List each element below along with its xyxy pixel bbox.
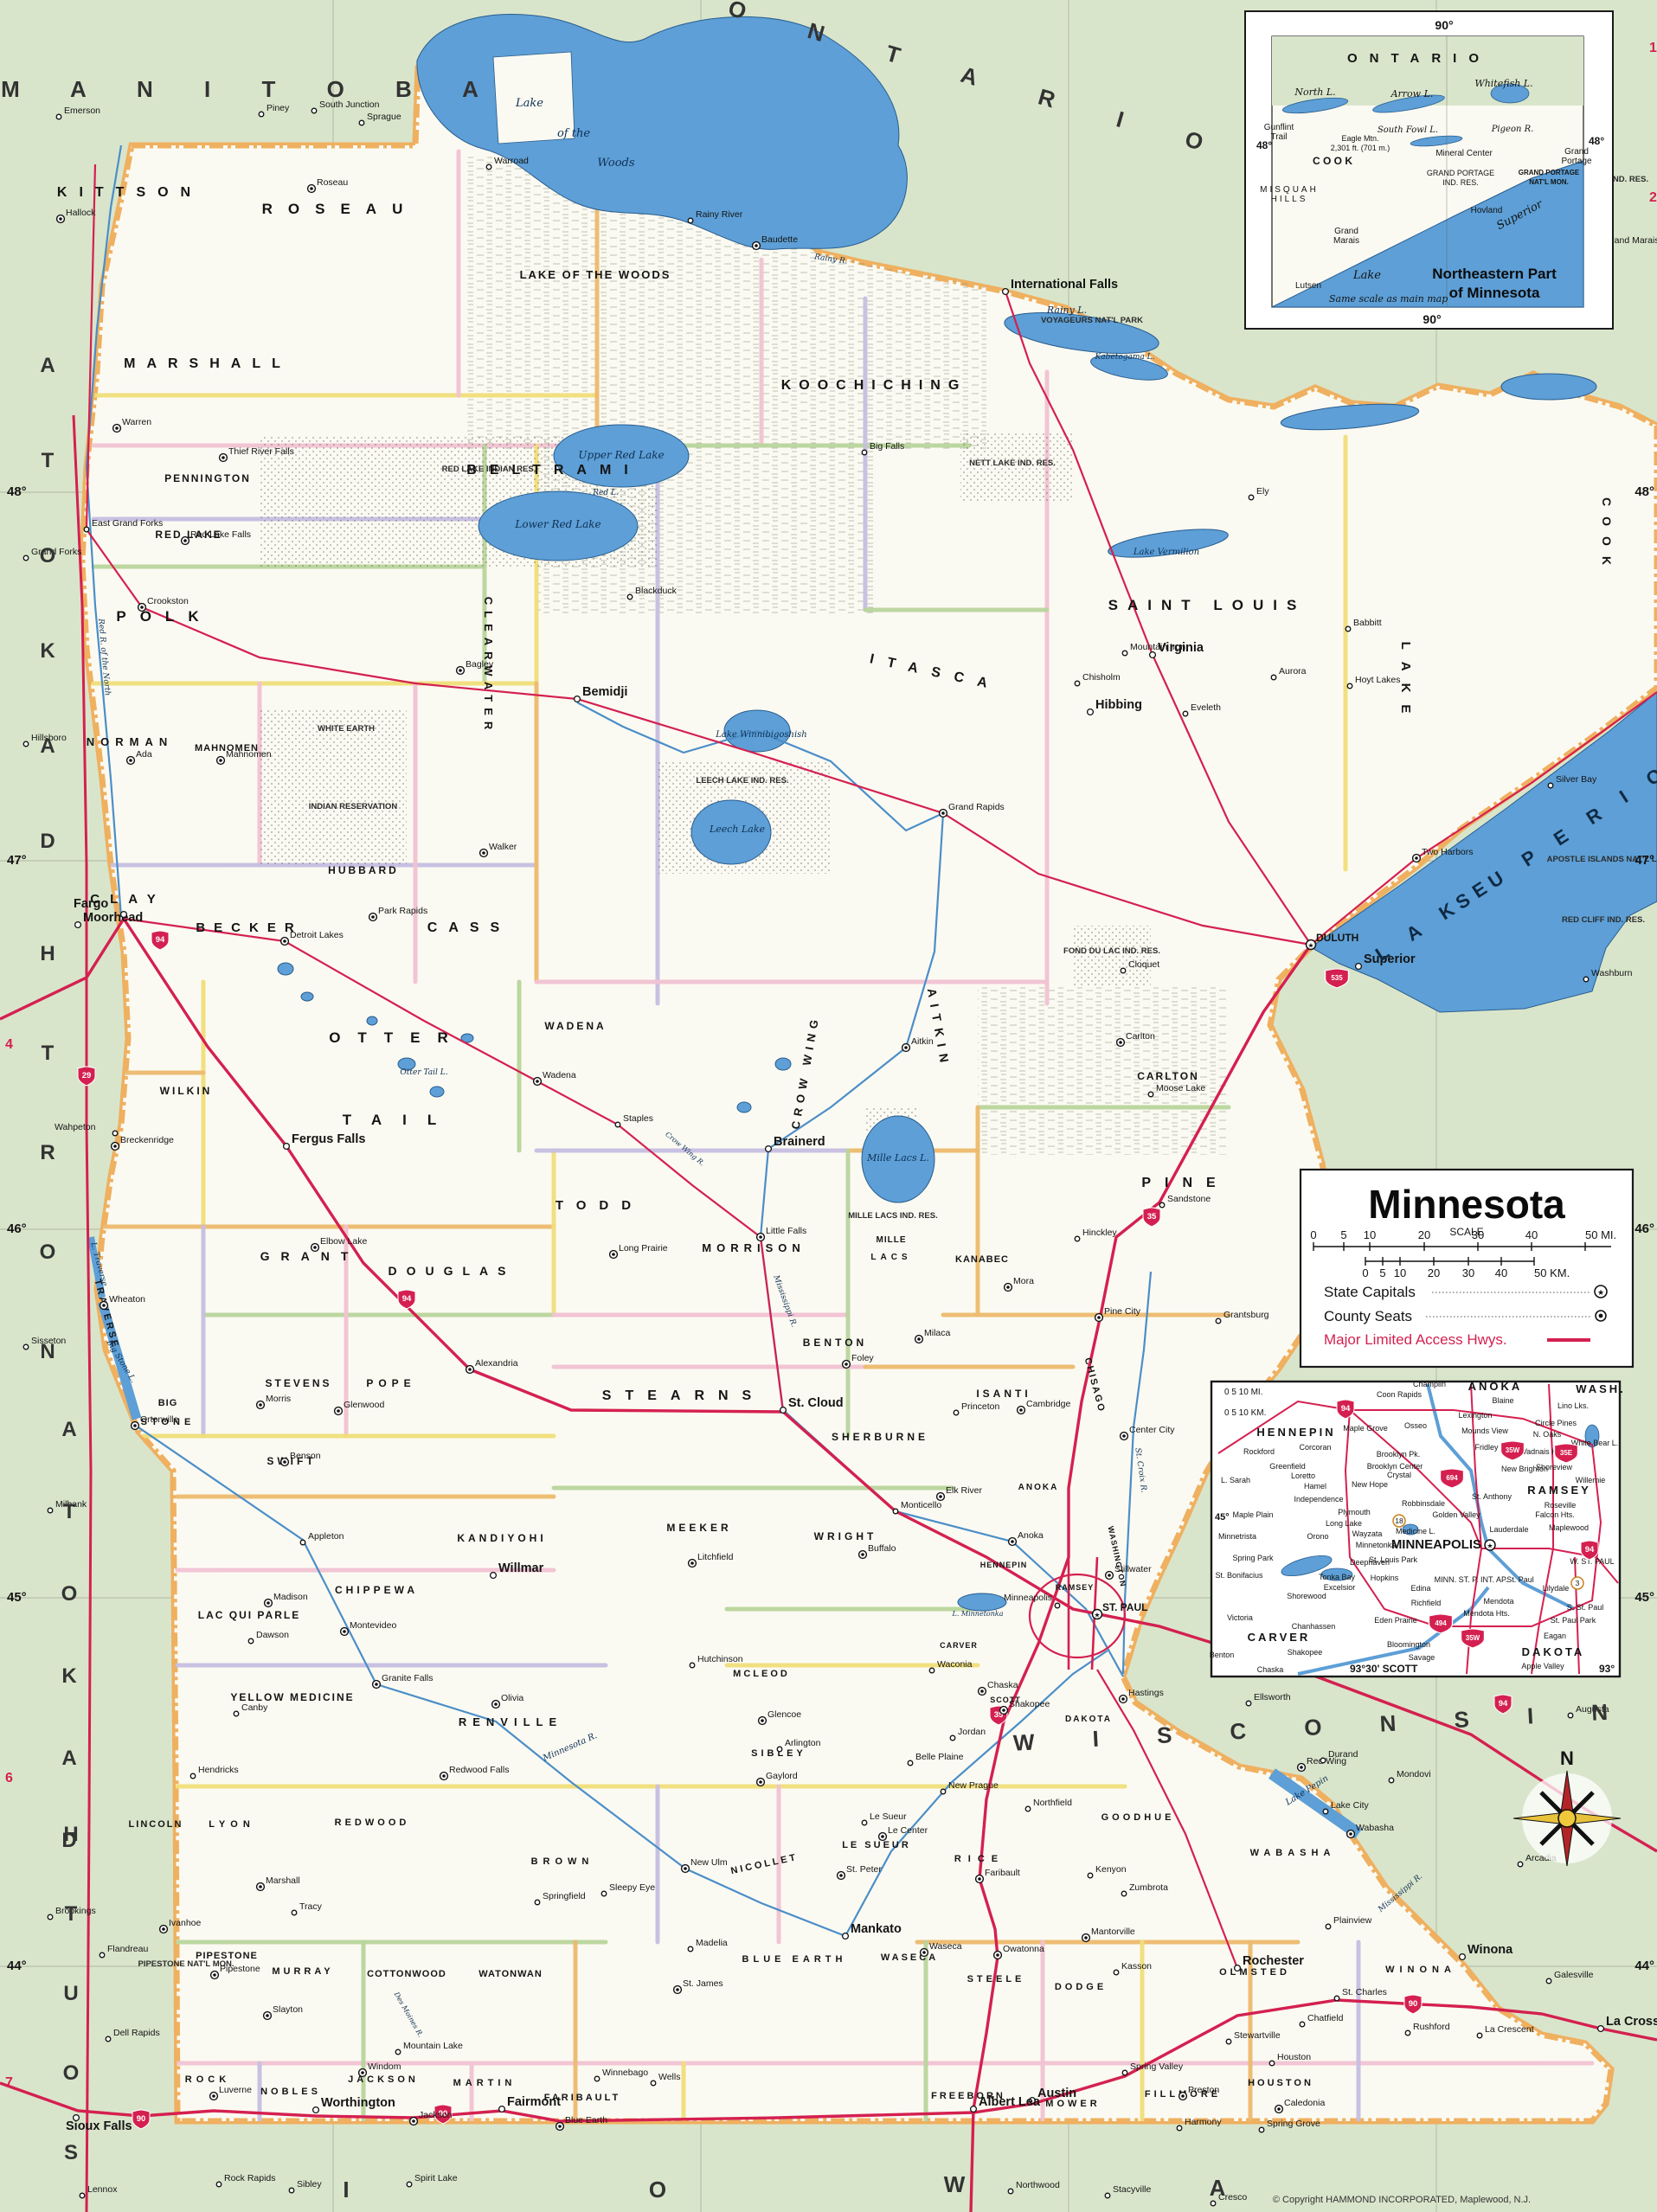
inset-county-label: ANOKA	[1468, 1380, 1523, 1393]
inset-county-label: DAKOTA	[1522, 1645, 1585, 1658]
reservation-label: VOYAGEURS NAT'L PARK	[1041, 316, 1143, 325]
city-label: Hendricks	[198, 1765, 239, 1775]
city-dot-icon	[1356, 964, 1362, 970]
reservation-label: RED CLIFF IND. RES.	[1562, 915, 1645, 925]
county-label: WABASHA	[1250, 1848, 1336, 1858]
seat-dot-icon	[266, 2014, 269, 2017]
inset-city-label: Lilydale	[1543, 1584, 1570, 1593]
neighbor-letter: O	[63, 2061, 80, 2085]
inset-city-label: St. Louis Park	[1369, 1555, 1418, 1564]
inset-capital-label: MINNEAPOLIS	[1391, 1537, 1481, 1552]
city-dot-icon	[651, 2081, 656, 2086]
seat-dot-icon	[212, 2094, 215, 2098]
capital-star-glyph: ★	[1487, 1542, 1493, 1550]
county-label: LACS	[870, 1253, 911, 1262]
water-label: Red L.	[592, 489, 619, 497]
city-dot-icon	[190, 1773, 196, 1779]
city-label: Slayton	[273, 2004, 303, 2015]
city-dot-icon	[300, 1540, 305, 1545]
city-dot-icon	[1259, 2127, 1264, 2132]
inset-city-label: Richfield	[1411, 1599, 1442, 1607]
city-label: Stillwater	[1114, 1564, 1152, 1574]
county-label: HENNEPIN	[980, 1561, 1028, 1569]
city-dot-icon	[106, 2036, 111, 2042]
city-label: Belle Plaine	[915, 1752, 964, 1762]
seat-dot-icon	[213, 1973, 216, 1977]
city-dot-icon	[248, 1638, 254, 1644]
city-label: Aitkin	[911, 1036, 934, 1047]
city-dot-icon	[1546, 1978, 1551, 1984]
city-label: Rock Rapids	[224, 2173, 276, 2183]
seat-dot-icon	[1122, 1434, 1126, 1438]
route-number: 18	[1395, 1516, 1403, 1525]
city-dot-icon	[84, 527, 89, 532]
city-label: Hutchinson	[697, 1654, 743, 1664]
seat-dot-icon	[917, 1337, 921, 1341]
seat-dot-icon	[881, 1835, 884, 1838]
city-dot-icon	[80, 2193, 85, 2198]
city-label: Wadena	[543, 1070, 576, 1080]
inset-city-label: Robbinsdale	[1402, 1499, 1445, 1508]
inset-city-label: Willernie	[1576, 1476, 1606, 1484]
seat-dot-icon	[361, 2071, 364, 2074]
city-label: Little Falls	[766, 1226, 806, 1236]
seat-dot-icon	[1019, 1408, 1023, 1412]
inset-ne-label: North L.	[1294, 87, 1335, 98]
city-dot-icon	[407, 2182, 412, 2187]
shield-number: 694	[1446, 1474, 1458, 1482]
city-dot-icon	[112, 1131, 118, 1136]
seat-dot-icon	[612, 1253, 615, 1256]
city-label: Park Rapids	[378, 906, 427, 916]
inset-ne-label: Whitefish L.	[1474, 78, 1532, 89]
inset-ne-title-2: of Minnesota	[1449, 285, 1540, 301]
city-label: Silver Bay	[1556, 774, 1597, 785]
seat-dot-icon	[310, 187, 313, 190]
county-label: POPE	[366, 1377, 415, 1389]
county-label: OTTER	[329, 1029, 466, 1046]
latitude-label: 48°	[1635, 484, 1654, 499]
inset-city-label: Champlin	[1413, 1380, 1446, 1388]
city-label: Two Harbors	[1422, 847, 1474, 857]
city-dot-icon	[1249, 495, 1254, 500]
city-label: Baudette	[761, 234, 798, 245]
neighbor-iowa-letter: I	[343, 2177, 349, 2202]
county-label: MEEKER	[666, 1522, 731, 1534]
city-label: Cambridge	[1026, 1399, 1071, 1409]
city-dot-icon	[1211, 2201, 1216, 2206]
inset-metro-scale-mi: 0 5 10 MI.	[1224, 1388, 1262, 1397]
neighbor-letter: O	[40, 544, 56, 567]
compass-hub	[1558, 1810, 1576, 1827]
minnesota-county-map: 299494949090903535535 RED LAKE INDIAN RE…	[0, 0, 1657, 2212]
city-label: New Prague	[948, 1780, 999, 1791]
city-label: Madison	[273, 1592, 308, 1602]
city-label: Spring Valley	[1130, 2061, 1184, 2072]
city-label: Madelia	[696, 1938, 728, 1948]
city-dot-icon	[971, 2106, 977, 2113]
latitude-label: 44°	[1635, 1959, 1654, 1973]
county-label: HOUSTON	[1248, 2078, 1313, 2088]
inset-metro-deg-bl: 93°30' SCOTT	[1350, 1663, 1418, 1675]
inset-city-label: Edina	[1410, 1584, 1430, 1593]
seat-dot-icon	[283, 1460, 286, 1464]
city-label: Wheaton	[109, 1294, 145, 1305]
copyright-notice: © Copyright HAMMOND INCORPORATED, Maplew…	[1273, 2195, 1531, 2205]
city-label: St. Cloud	[788, 1396, 844, 1410]
city-dot-icon	[216, 2182, 222, 2187]
shield-number: 94	[1585, 1545, 1595, 1555]
city-label: Grand Rapids	[948, 802, 1005, 812]
county-label: MARSHALL	[124, 356, 292, 371]
inset-ne-deg-left: 48°	[1256, 139, 1272, 151]
city-label: Babbitt	[1353, 618, 1382, 628]
mile-tick-label: 30	[1472, 1228, 1484, 1241]
city-dot-icon	[594, 2076, 600, 2081]
inset-city-label: Crystal	[1387, 1471, 1411, 1479]
city-label: Monticello	[901, 1500, 941, 1510]
city-dot-icon	[1271, 675, 1276, 680]
neighbor-letter: A	[40, 734, 55, 758]
city-label: Elk River	[946, 1485, 983, 1496]
county-label: BROWN	[531, 1856, 594, 1867]
neighbor-letter: O	[61, 1582, 78, 1606]
inset-ne-label: Mineral Center	[1435, 149, 1493, 158]
city-label: Appleton	[308, 1531, 344, 1542]
city-label: Elbow Lake	[320, 1236, 367, 1247]
city-dot-icon	[1477, 2033, 1482, 2038]
city-label: Rushford	[1413, 2022, 1450, 2032]
latitude-label: 44°	[7, 1959, 27, 1973]
neighbor-letter: N	[40, 1340, 55, 1363]
city-label: Detroit Lakes	[290, 930, 344, 940]
inset-county-label: RAMSEY	[1527, 1484, 1591, 1497]
inset-city-label: Excelsior	[1324, 1583, 1356, 1592]
inset-city-label: Eden Prairie	[1374, 1616, 1417, 1625]
city-label: Le Sueur	[870, 1811, 907, 1822]
inset-county-label: WASH.	[1576, 1382, 1626, 1395]
county-label: MORRISON	[702, 1241, 806, 1254]
seat-dot-icon	[371, 915, 375, 919]
city-label: Granite Falls	[382, 1673, 434, 1683]
shield-number: 29	[82, 1071, 92, 1080]
seat-dot-icon	[1277, 2107, 1281, 2111]
county-label: LYON	[209, 1819, 255, 1830]
county-label: BIG	[158, 1398, 178, 1408]
neighbor-iowa-letter: W	[944, 2171, 966, 2197]
inset-city-label: Medicine L.	[1396, 1527, 1435, 1536]
seat-dot-icon	[922, 1951, 926, 1954]
city-label: Ellsworth	[1254, 1692, 1291, 1702]
seat-dot-icon	[690, 1561, 694, 1565]
city-label: Moorhead	[83, 911, 143, 925]
city-label: Waseca	[929, 1941, 962, 1952]
seat-dot-icon	[442, 1774, 446, 1778]
shield-number: 494	[1435, 1619, 1447, 1627]
city-dot-icon	[1346, 626, 1351, 632]
city-dot-icon	[491, 1573, 497, 1579]
city-dot-icon	[499, 2106, 505, 2113]
city-label: Fairmont	[507, 2095, 561, 2109]
inset-city-label: Falcon Hts.	[1535, 1510, 1575, 1519]
city-label: Hoyt Lakes	[1355, 675, 1401, 685]
seat-dot-icon	[375, 1683, 378, 1686]
city-label: Durand	[1328, 1749, 1358, 1760]
seat-dot-icon	[759, 1235, 762, 1239]
seat-dot-icon	[755, 244, 758, 247]
county-label: MURRAY	[272, 1966, 333, 1977]
county-label: BELTRAMI	[466, 463, 640, 478]
city-dot-icon	[1122, 651, 1127, 656]
seat-dot-icon	[343, 1630, 346, 1633]
city-dot-icon	[1323, 1809, 1328, 1814]
city-dot-icon	[1088, 709, 1094, 715]
city-label: Arlington	[785, 1738, 821, 1748]
county-label: STEARNS	[602, 1388, 765, 1403]
city-label: Windom	[368, 2061, 401, 2072]
city-label: Stewartville	[1234, 2030, 1281, 2041]
city-dot-icon	[1025, 1806, 1031, 1811]
latitude-label: 47°	[1635, 853, 1654, 868]
county-label: RENVILLE	[459, 1715, 562, 1728]
city-dot-icon	[1320, 1758, 1326, 1763]
mile-tick-label: 50 MI.	[1585, 1228, 1616, 1241]
mile-tick-label: 5	[1340, 1228, 1346, 1241]
county-label: LAKE OF THE WOODS	[520, 268, 671, 281]
city-dot-icon	[780, 1407, 787, 1414]
inset-city-label: Rockford	[1243, 1447, 1275, 1456]
city-label: Worthington	[321, 2096, 395, 2110]
city-dot-icon	[1177, 2125, 1182, 2131]
water-label: Lake	[515, 97, 543, 110]
city-label: Bagley	[466, 659, 494, 670]
county-label: TODD	[556, 1198, 644, 1213]
inset-city-label: Victoria	[1227, 1613, 1253, 1622]
inset-ne-label: GrandPortage	[1561, 147, 1591, 166]
inset-city-label: Brooklyn Pk.	[1377, 1450, 1421, 1459]
city-dot-icon	[1300, 2022, 1305, 2027]
shield-number: 94	[156, 935, 165, 945]
inset-ne-label: Lutsen	[1295, 281, 1321, 291]
latitude-label: 46°	[7, 1221, 27, 1236]
county-label: BECKER	[196, 920, 302, 935]
seat-dot-icon	[1415, 856, 1418, 860]
city-label: Foley	[851, 1353, 874, 1363]
city-label: Pine City	[1104, 1306, 1141, 1317]
county-label: CARLTON	[1137, 1070, 1199, 1082]
county-label: DODGE	[1055, 1982, 1107, 1992]
city-label: Fergus Falls	[292, 1132, 365, 1146]
city-label: Crookston	[147, 596, 189, 606]
seat-dot-icon	[482, 851, 485, 855]
county-label: KOOCHICHING	[781, 378, 967, 393]
city-dot-icon	[1150, 652, 1156, 658]
city-label: Ortonville	[140, 1414, 179, 1425]
city-dot-icon	[1548, 783, 1553, 788]
city-dot-icon	[100, 1952, 105, 1958]
shield-number: 35W	[1506, 1446, 1520, 1454]
seat-dot-icon	[1011, 1540, 1014, 1543]
city-label: Mantorville	[1091, 1927, 1135, 1937]
shield-number: 94	[1341, 1404, 1351, 1414]
city-label: Jackson	[419, 2110, 453, 2120]
inset-ne-note: Same scale as main map	[1329, 293, 1448, 305]
city-label: Plainview	[1333, 1915, 1372, 1926]
city-dot-icon	[1389, 1778, 1394, 1783]
shield-number: 90	[1409, 1999, 1418, 2009]
city-label: Fargo	[74, 897, 108, 911]
city-label: Zumbrota	[1129, 1882, 1168, 1893]
city-dot-icon	[929, 1668, 934, 1673]
city-dot-icon	[1121, 1891, 1127, 1896]
city-label: Glencoe	[767, 1709, 801, 1720]
capital-star-glyph: ★	[1307, 941, 1313, 949]
city-dot-icon	[1148, 1092, 1153, 1097]
seat-dot-icon	[59, 217, 62, 221]
city-label: St. James	[683, 1978, 723, 1989]
county-label: STEVENS	[265, 1377, 331, 1389]
city-dot-icon	[23, 741, 29, 747]
city-dot-icon	[56, 114, 61, 119]
city-label: Faribault	[985, 1868, 1020, 1878]
city-dot-icon	[311, 108, 317, 113]
city-dot-icon	[777, 1747, 782, 1752]
shield-number: 94	[402, 1294, 412, 1304]
city-label: Northwood	[1016, 2180, 1060, 2190]
city-dot-icon	[908, 1760, 913, 1766]
shield-number: 535	[1331, 974, 1343, 982]
inset-city-label: N. Oaks	[1533, 1430, 1562, 1439]
seat-dot-icon	[759, 1780, 762, 1784]
city-label: Grantsburg	[1223, 1310, 1269, 1320]
city-label: Flandreau	[107, 1944, 148, 1954]
city-dot-icon	[1105, 2193, 1110, 2198]
city-label: Pipestone	[220, 1964, 260, 1974]
city-label: Rainy River	[696, 209, 743, 220]
inset-city-label: Mendota Hts.	[1463, 1609, 1510, 1618]
city-dot-icon	[1598, 2026, 1604, 2032]
water-label: Lower Red Lake	[514, 518, 601, 530]
city-label: Austin	[1037, 2087, 1076, 2100]
city-dot-icon	[688, 1946, 693, 1952]
route-number: 3	[1576, 1579, 1580, 1587]
county-label: DOUGLAS	[389, 1264, 516, 1278]
county-label: WRIGHT	[814, 1530, 877, 1542]
seat-dot-icon	[129, 759, 132, 762]
city-label: Dawson	[256, 1630, 289, 1640]
water-label: Lake Vermilion	[1133, 548, 1199, 557]
city-dot-icon	[292, 1910, 297, 1915]
city-dot-icon	[1326, 1924, 1331, 1929]
city-dot-icon	[690, 1663, 695, 1668]
city-dot-icon	[1075, 681, 1080, 686]
city-label: Blue Earth	[565, 2115, 607, 2125]
city-dot-icon	[48, 1508, 53, 1513]
city-label: Aurora	[1279, 666, 1307, 676]
county-label: HUBBARD	[328, 864, 399, 876]
county-label: STEELE	[967, 1974, 1025, 1984]
edge-index-number: 6	[5, 1771, 13, 1786]
county-label: KANABEC	[955, 1254, 1009, 1265]
inset-city-label: L. Sarah	[1221, 1476, 1250, 1484]
city-label: Mora	[1013, 1276, 1034, 1286]
reservation-label: INDIAN RESERVATION	[309, 802, 398, 811]
edge-index-number: 4	[5, 1037, 13, 1052]
city-label: ST. PAUL	[1102, 1601, 1147, 1613]
mile-tick-label: 10	[1364, 1228, 1376, 1241]
seat-dot-icon	[558, 2125, 562, 2128]
city-label: Northfield	[1033, 1798, 1072, 1808]
city-label: DULUTH	[1316, 932, 1358, 944]
city-label: Wells	[658, 2072, 680, 2082]
km-tick-label: 30	[1462, 1266, 1474, 1279]
city-label: Roseau	[317, 177, 348, 188]
city-dot-icon	[688, 218, 693, 223]
neighbor-letter: R	[40, 1141, 55, 1164]
neighbor-manitoba: M A N I T O B A	[1, 76, 501, 102]
city-dot-icon	[893, 1509, 898, 1514]
inset-city-label: Mounds View	[1461, 1427, 1508, 1435]
city-label: Ada	[136, 749, 152, 760]
inset-city-label: Shakopee	[1288, 1648, 1323, 1657]
county-label: PENNINGTON	[164, 472, 251, 484]
city-label: Albert Lea	[979, 2095, 1041, 2109]
city-label: International Falls	[1011, 278, 1118, 292]
city-dot-icon	[1159, 1202, 1165, 1208]
city-dot-icon	[1246, 1701, 1251, 1706]
neighbor-letter: A	[61, 1418, 76, 1441]
inset-city-label: Lino Lks.	[1557, 1401, 1589, 1410]
county-label: TAIL	[343, 1112, 458, 1128]
inset-city-label: Coon Rapids	[1377, 1390, 1423, 1399]
inset-city-label: Savage	[1409, 1653, 1435, 1662]
inset-metro-scale-km: 0 5 10 KM.	[1224, 1408, 1266, 1418]
city-dot-icon	[234, 1711, 239, 1716]
legend: Minnesota SCALE 051020304050 MI.05102030…	[1301, 1170, 1633, 1367]
inset-city-label: Hamel	[1304, 1482, 1326, 1491]
inset-city-label: Greenfield	[1269, 1462, 1306, 1471]
county-label: MILLE	[877, 1235, 907, 1245]
city-label: Preston	[1188, 2085, 1219, 2095]
county-label: COOK	[1600, 497, 1614, 575]
city-label: Alexandria	[475, 1358, 518, 1369]
county-label: OLMSTED	[1219, 1967, 1290, 1978]
legend-capitals-label: State Capitals	[1324, 1284, 1416, 1300]
city-label: Houston	[1277, 2052, 1311, 2062]
reservation-label: WHITE EARTH	[318, 724, 375, 734]
km-tick-label: 20	[1428, 1266, 1440, 1279]
city-dot-icon	[575, 696, 581, 702]
inset-city-label: Lauderdale	[1489, 1525, 1528, 1534]
mile-tick-label: 40	[1525, 1228, 1538, 1241]
seat-dot-icon	[140, 606, 144, 609]
water-label: Rainy L.	[1046, 305, 1087, 316]
city-dot-icon	[23, 1344, 29, 1350]
inset-city-label: Circle Pines	[1535, 1419, 1577, 1427]
inset-northeast: ONTARIONorth L.Arrow L.Whitefish L.South…	[1245, 11, 1613, 329]
seat-dot-icon	[1002, 1709, 1005, 1712]
inset-county-label: CARVER	[1248, 1631, 1311, 1644]
neighbor-letter: T	[42, 449, 55, 472]
city-dot-icon	[1008, 2189, 1013, 2194]
water-label: L. Minnetonka	[952, 1610, 1004, 1618]
shield-number: 35	[1147, 1212, 1157, 1221]
city-label: Breckenridge	[120, 1135, 174, 1145]
city-label: Winona	[1468, 1943, 1513, 1957]
saganaga-lake	[1501, 374, 1596, 400]
city-label: Piney	[267, 103, 290, 113]
county-label: DAKOTA	[1065, 1715, 1112, 1724]
